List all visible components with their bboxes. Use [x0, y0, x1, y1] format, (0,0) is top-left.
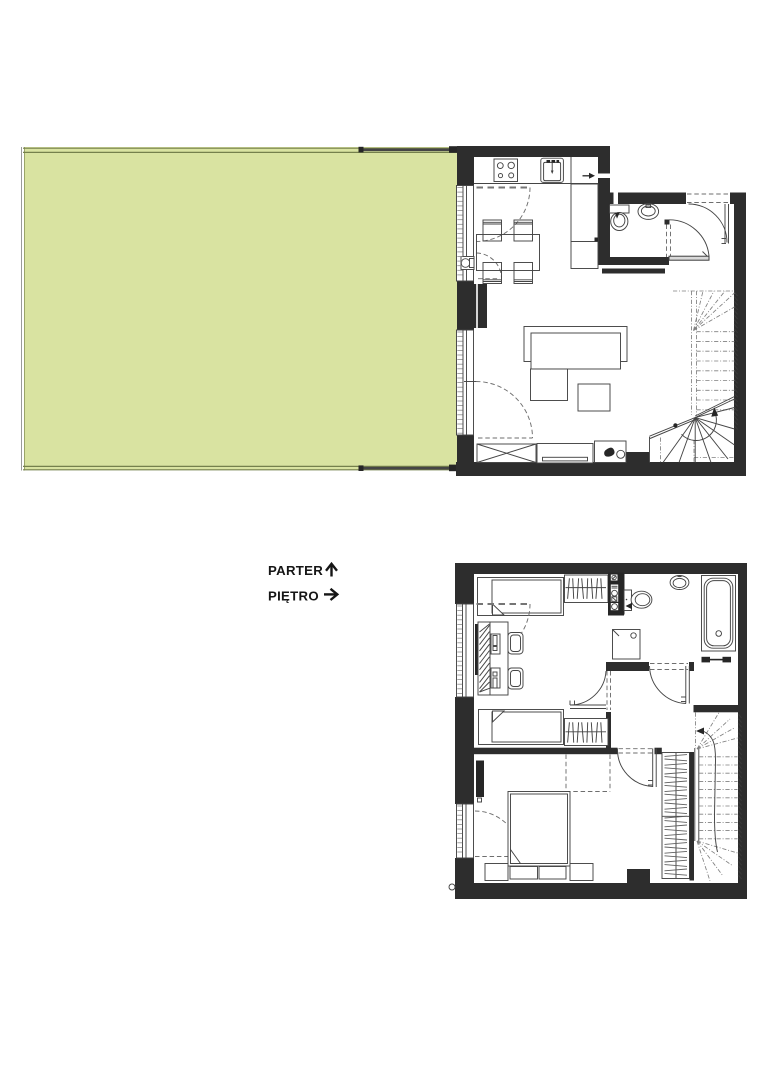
svg-text:PARTER: PARTER — [268, 563, 323, 578]
svg-text:PIĘTRO: PIĘTRO — [268, 589, 319, 604]
